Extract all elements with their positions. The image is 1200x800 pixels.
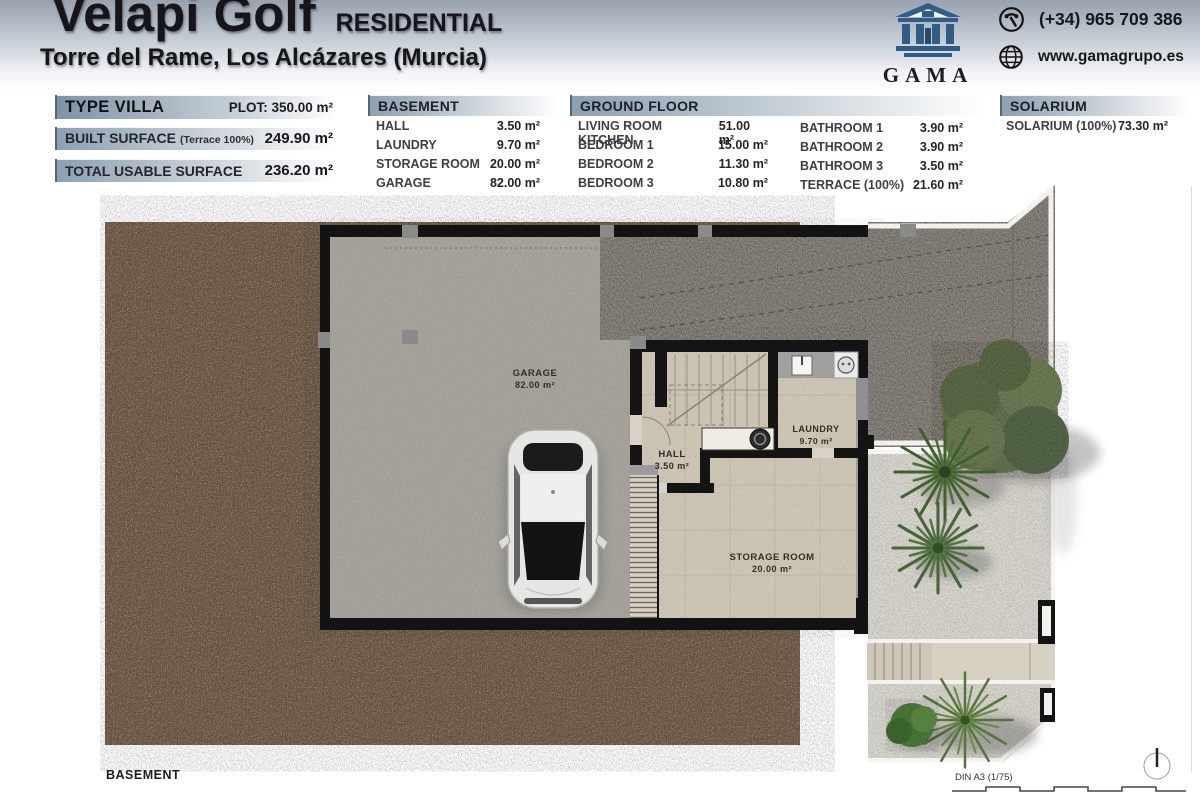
table-row: BEDROOM 211.30 m² [578, 157, 768, 171]
built-surface-label: BUILT SURFACE(Terrace 100%) [65, 130, 254, 148]
scale-bar [952, 784, 1192, 794]
contact-block: (+34) 965 709 386 www.gamagrupo.es [998, 6, 1194, 81]
built-surface-value: 249.90 m² [265, 130, 333, 147]
table-row: BEDROOM 115.00 m² [578, 138, 768, 152]
phone-icon [998, 6, 1025, 33]
ramp-hatch [630, 465, 658, 618]
gama-logo: GAMA [876, 2, 980, 88]
location-subtitle: Torre del Rame, Los Alcázares (Murcia) [40, 44, 487, 72]
north-indicator-icon [1144, 748, 1170, 779]
garden-path [932, 643, 1055, 680]
residential-label: RESIDENTIAL [336, 9, 503, 38]
website-row: www.gamagrupo.es [998, 44, 1194, 70]
plot-area: PLOT: 350.00 m² [229, 100, 333, 115]
usable-surface-bar: TOTAL USABLE SURFACE 236.20 m² [55, 159, 338, 182]
paper-edge-line [1191, 186, 1192, 772]
basement-table-header: BASEMENT [368, 95, 560, 116]
solarium-table-header: SOLARIUM [1000, 95, 1190, 116]
table-row: STORAGE ROOM20.00 m² [376, 157, 540, 171]
garage-label: GARAGE [513, 368, 558, 379]
type-label: TYPE VILLA [65, 98, 164, 117]
table-row: BATHROOM 23.90 m² [800, 140, 963, 154]
gama-wordmark: GAMA [876, 63, 980, 88]
ground-floor-table-header: GROUND FLOOR [570, 95, 985, 116]
storage-area: 20.00 m² [752, 564, 792, 574]
usable-surface-value: 236.20 m² [265, 162, 333, 179]
hall-area: 3.50 m² [655, 461, 690, 471]
phone-row: (+34) 965 709 386 [998, 6, 1194, 33]
title-block: Velapi Golf RESIDENTIAL [52, 0, 502, 43]
floor-caption: BASEMENT [106, 768, 180, 782]
hall-label: HALL [658, 449, 685, 460]
table-row: BATHROOM 33.50 m² [800, 159, 963, 173]
laundry-fixtures [778, 352, 858, 378]
development-title: Velapi Golf [52, 0, 316, 43]
website-url: www.gamagrupo.es [1038, 48, 1184, 66]
table-row: LAUNDRY9.70 m² [376, 138, 540, 152]
header: Velapi Golf RESIDENTIAL Torre del Rame, … [0, 0, 1200, 92]
table-row: BATHROOM 13.90 m² [800, 121, 963, 135]
built-surface-bar: BUILT SURFACE(Terrace 100%) 249.90 m² [55, 127, 338, 150]
globe-icon [998, 44, 1024, 70]
temple-icon [892, 2, 964, 58]
usable-surface-label: TOTAL USABLE SURFACE [65, 163, 242, 179]
type-villa-bar: TYPE VILLA PLOT: 350.00 m² [55, 95, 338, 119]
floor-plan: GARAGE 82.00 m² HALL 3.50 m² LAUNDRY 9.7… [100, 180, 1192, 780]
phone-number: (+34) 965 709 386 [1039, 9, 1183, 30]
scale-caption: DIN A3 (1/75) [955, 772, 1013, 783]
exterior-stairs [867, 639, 1055, 684]
laundry-area: 9.70 m² [799, 436, 832, 446]
bench-washer [702, 428, 774, 450]
storage-label: STORAGE ROOM [730, 552, 815, 563]
car-top-view [498, 430, 608, 612]
table-row: HALL3.50 m² [376, 119, 540, 133]
laundry-label: LAUNDRY [792, 424, 839, 434]
table-row: SOLARIUM (100%)73.30 m² [1006, 119, 1168, 133]
garage-area: 82.00 m² [515, 380, 555, 390]
plan-sheet: Velapi Golf RESIDENTIAL Torre del Rame, … [0, 0, 1200, 800]
